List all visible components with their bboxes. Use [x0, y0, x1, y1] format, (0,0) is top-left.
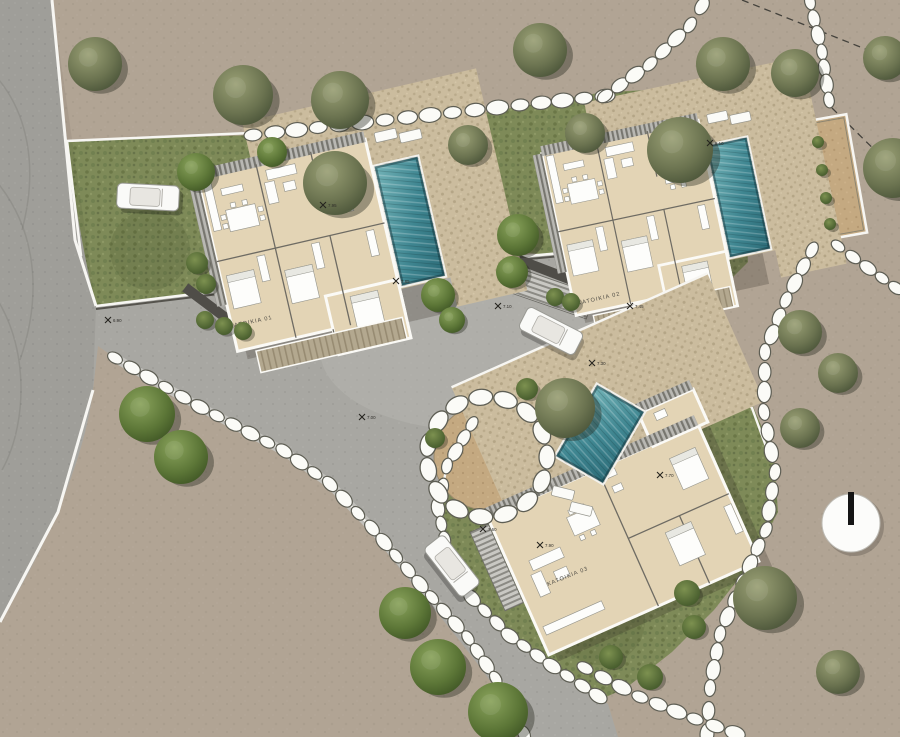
tree-highlight: [225, 77, 246, 98]
tree-highlight: [389, 597, 407, 615]
tree-highlight: [660, 130, 683, 153]
tree: [818, 353, 858, 393]
car: [116, 183, 183, 216]
tree: [257, 137, 287, 167]
bush: [562, 293, 580, 311]
tree: [696, 37, 750, 91]
bush: [824, 218, 836, 230]
bush: [546, 288, 564, 306]
tree-highlight: [524, 34, 543, 53]
tree-highlight: [130, 397, 150, 417]
site-plan: ΚΑΤΟΙΚΙΑ 01 ΚΑΤΟΙΚΙΑ 02 ΚΑΤΟΙΚΙΑ 03 6.90…: [0, 0, 900, 737]
tree: [213, 65, 273, 125]
tree-highlight: [781, 59, 798, 76]
tree-highlight: [707, 48, 726, 67]
tree: [311, 71, 369, 129]
bush: [215, 317, 233, 335]
tree-highlight: [826, 361, 840, 375]
tree: [68, 37, 122, 91]
tree-highlight: [316, 164, 338, 186]
elevation-value: 7.90: [545, 543, 554, 548]
elevation-value: 7.95: [328, 203, 337, 208]
tree: [410, 639, 466, 695]
tree: [379, 587, 431, 639]
tree: [421, 278, 455, 312]
tree-highlight: [185, 161, 198, 174]
stone: [757, 381, 771, 402]
tree: [496, 256, 528, 288]
elevation-value: 7.00: [367, 415, 376, 420]
bush: [812, 136, 824, 148]
tree: [177, 153, 215, 191]
tree: [733, 566, 797, 630]
tree-highlight: [746, 579, 768, 601]
bush: [196, 311, 214, 329]
bush: [599, 645, 623, 669]
bush: [425, 428, 445, 448]
bush: [516, 378, 538, 400]
tree-highlight: [547, 390, 568, 411]
tree-highlight: [263, 143, 274, 154]
tree-highlight: [323, 83, 343, 103]
elevation-value: 7.85: [401, 279, 410, 284]
tree-highlight: [79, 48, 98, 67]
elevation-value: 7.70: [665, 473, 674, 478]
stone: [704, 679, 716, 697]
elevation-value: 8.10: [715, 141, 724, 146]
tree-highlight: [502, 262, 513, 273]
tree-highlight: [825, 659, 840, 674]
tree: [771, 49, 819, 97]
bush: [816, 164, 828, 176]
tree: [535, 378, 595, 438]
elevation-value: 7.10: [503, 304, 512, 309]
bush: [186, 252, 208, 274]
tree-highlight: [480, 694, 501, 715]
tree-highlight: [788, 416, 802, 430]
tree: [778, 310, 822, 354]
north-bar-icon: [848, 492, 854, 525]
tree-highlight: [573, 121, 587, 135]
tree: [647, 117, 713, 183]
stone: [758, 362, 771, 381]
tree-highlight: [444, 312, 453, 321]
tree: [780, 408, 820, 448]
tree-highlight: [421, 650, 441, 670]
tree-highlight: [428, 285, 440, 297]
car-cabin: [130, 187, 161, 207]
stone: [759, 343, 771, 360]
site-plan-canvas: ΚΑΤΟΙΚΙΑ 01 ΚΑΤΟΙΚΙΑ 02 ΚΑΤΟΙΚΙΑ 03 6.90…: [0, 0, 900, 737]
elevation-value: 6.90: [113, 318, 122, 323]
tree: [119, 386, 175, 442]
tree: [154, 430, 208, 484]
tree-highlight: [505, 222, 520, 237]
tree-highlight: [875, 150, 896, 171]
tree-highlight: [165, 441, 184, 460]
tree-highlight: [787, 319, 802, 334]
tree: [448, 125, 488, 165]
bush: [682, 615, 706, 639]
bush: [196, 274, 216, 294]
bush: [820, 192, 832, 204]
bush: [234, 322, 252, 340]
tree: [565, 113, 605, 153]
tree-highlight: [872, 45, 887, 60]
elevation-value: 7.60: [488, 527, 497, 532]
tree: [497, 214, 539, 256]
bush: [674, 580, 700, 606]
elevation-value: 7.30: [597, 361, 606, 366]
tree: [513, 23, 567, 77]
bush: [637, 664, 663, 690]
tree: [439, 307, 465, 333]
plaza-stone: [539, 445, 555, 469]
elevation-value: 7.45: [635, 304, 644, 309]
tree-highlight: [456, 133, 470, 147]
tree: [816, 650, 860, 694]
